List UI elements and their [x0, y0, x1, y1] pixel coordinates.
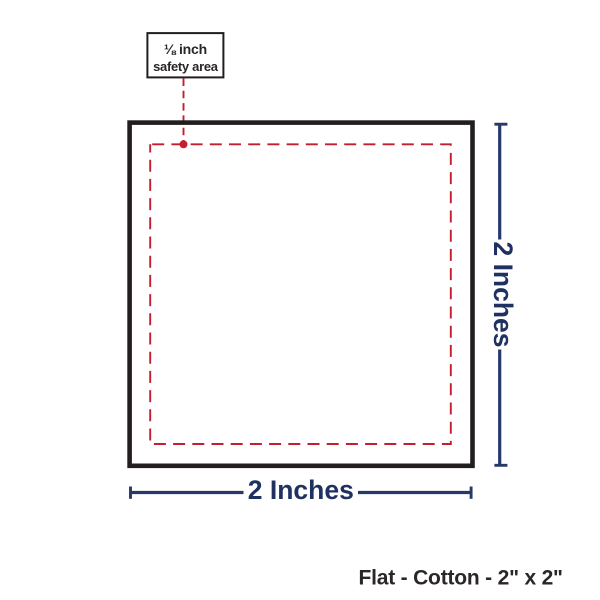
- svg-text:2 Inches: 2 Inches: [248, 475, 354, 505]
- svg-text:Flat - Cotton - 2" x 2": Flat - Cotton - 2" x 2": [359, 567, 563, 590]
- svg-text:⅛ inch: ⅛ inch: [164, 41, 207, 57]
- svg-text:2 Inches: 2 Inches: [488, 241, 518, 347]
- svg-text:safety area: safety area: [153, 59, 219, 74]
